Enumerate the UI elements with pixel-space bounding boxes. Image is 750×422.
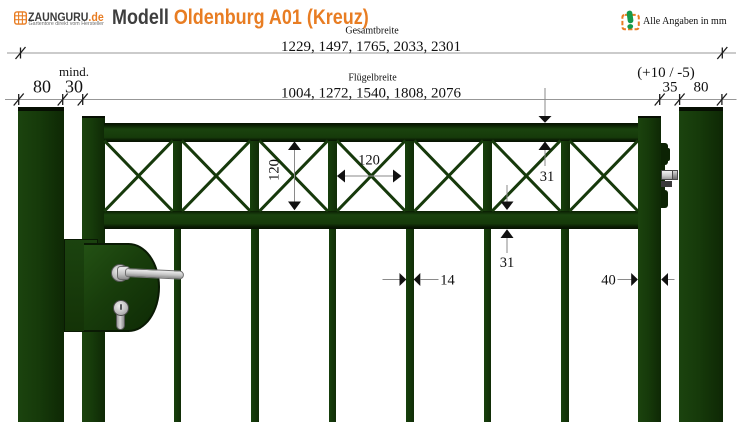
svg-text:1229, 1497, 1765, 2033, 2301: 1229, 1497, 1765, 2033, 2301: [281, 39, 461, 55]
svg-text:31: 31: [540, 169, 555, 185]
svg-text:Flügelbreite: Flügelbreite: [348, 73, 397, 84]
svg-text:120: 120: [267, 159, 283, 181]
svg-text:Gesamtbreite: Gesamtbreite: [345, 26, 399, 37]
svg-text:31: 31: [500, 255, 515, 271]
svg-text:14: 14: [440, 273, 455, 289]
svg-text:30: 30: [65, 77, 83, 97]
svg-text:40: 40: [601, 273, 616, 289]
svg-text:80: 80: [694, 80, 709, 96]
svg-text:120: 120: [358, 153, 380, 169]
svg-text:35: 35: [663, 80, 678, 96]
svg-text:80: 80: [33, 77, 51, 97]
svg-text:1004, 1272, 1540, 1808, 2076: 1004, 1272, 1540, 1808, 2076: [281, 86, 462, 102]
